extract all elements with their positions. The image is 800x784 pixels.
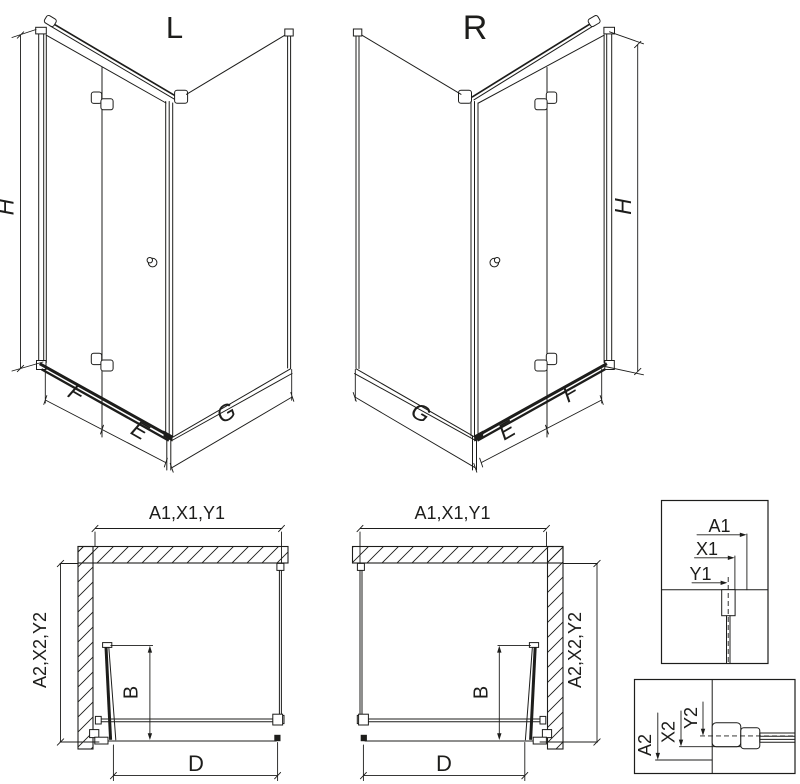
dim-label-g: G	[212, 397, 241, 428]
glass-and-rail-lines	[360, 571, 541, 742]
header-bar	[473, 21, 595, 97]
ref-label-y2: Y2	[681, 707, 701, 729]
wall-profile-top-cap	[36, 27, 47, 34]
header-bar-inner	[50, 26, 176, 100]
ref-label-a1: A1	[708, 516, 730, 536]
glass-and-rail-lines	[100, 571, 281, 742]
dim-label-f: F	[557, 377, 584, 408]
detail-view-top: A1 X1 Y1	[662, 501, 769, 664]
dim-label-f: F	[64, 378, 91, 409]
hinge-bottom	[535, 353, 557, 371]
ref-x1: X1	[695, 539, 735, 560]
ref-lines	[656, 747, 741, 760]
folded-door	[103, 643, 116, 740]
plan-view-left: A1,X1,Y1 A2,X2,Y2 B D	[30, 503, 288, 781]
wall-profile-left	[39, 31, 47, 366]
ref-label-a2: A2	[635, 734, 655, 756]
tray-corner-cap	[274, 735, 280, 741]
ref-lines	[735, 534, 747, 590]
dim-b-right: B	[471, 646, 531, 740]
door-pivot-bracket-2	[95, 737, 108, 744]
dim-g-right: G	[353, 370, 477, 473]
dim-d-left: D	[110, 743, 280, 781]
side-glass-top-cap	[357, 563, 364, 570]
dim-label-d: D	[436, 751, 452, 776]
ref-y1: Y1	[689, 564, 727, 585]
ref-y2: Y2	[681, 702, 705, 736]
dim-label-a2x2y2: A2,X2,Y2	[565, 612, 585, 688]
dim-label-h: H	[0, 198, 19, 215]
dim-label-b: B	[121, 686, 143, 699]
variant-label-l: L	[166, 10, 183, 45]
ref-label-y1: Y1	[689, 564, 711, 584]
iso-view-right: R H F E	[353, 9, 643, 472]
dim-h-left: H	[0, 30, 43, 372]
tray-corner-cap	[361, 735, 367, 741]
door-pivot-bracket-2	[533, 737, 546, 744]
hinge-top	[91, 92, 113, 110]
rail-corner-bracket	[359, 714, 369, 725]
rail-wall-bracket	[95, 716, 101, 724]
corner-bracket	[175, 90, 188, 103]
dim-label-b: B	[471, 686, 493, 699]
dim-label-h: H	[610, 198, 636, 215]
ref-label-x1: X1	[696, 539, 718, 559]
door-knob-icon	[490, 258, 500, 267]
hinge-bottom	[91, 353, 113, 371]
detail-view-bottom: A2 X2 Y2	[635, 680, 796, 774]
wall-left-hatched	[78, 547, 93, 750]
wall-right-hatched	[548, 547, 564, 750]
dim-h-right: H	[605, 32, 644, 375]
technical-drawing-page: L H	[0, 0, 800, 784]
dim-label-a1x1y1: A1,X1,Y1	[149, 503, 225, 523]
header-bar-end-cap	[587, 15, 601, 28]
side-panel-lines	[171, 33, 292, 441]
rail-profile-section-2	[741, 728, 760, 749]
iso-view-left: L H	[0, 10, 294, 472]
dim-d-right: D	[360, 743, 527, 781]
dim-label-g: G	[407, 397, 436, 428]
glass-section-lines	[760, 733, 795, 742]
side-panel-top-cap	[353, 29, 361, 36]
rail-corner-bracket	[273, 714, 283, 725]
dim-fe-left: F E	[44, 369, 168, 467]
ref-a1: A1	[697, 516, 747, 537]
door-knob-icon	[147, 258, 157, 267]
header-bar	[49, 21, 177, 97]
glass-section-lines	[727, 616, 731, 664]
dim-label-a1x1y1: A1,X1,Y1	[414, 503, 490, 523]
dim-label-a2x2y2: A2,X2,Y2	[30, 612, 50, 688]
dim-fe-right: F E	[480, 369, 604, 467]
dim-g-left: G	[170, 370, 294, 473]
ref-label-x2: X2	[659, 721, 679, 743]
folded-door	[525, 643, 538, 740]
bottom-rail-lower	[42, 369, 169, 440]
dim-label-d: D	[188, 751, 204, 776]
wall-top-hatched	[353, 547, 564, 564]
ref-a2: A2	[635, 713, 660, 760]
ref-x2: X2	[659, 711, 684, 746]
door-pivot-bracket	[542, 730, 551, 738]
wall-top-hatched	[78, 547, 288, 564]
rail-wall-bracket	[540, 716, 546, 724]
variant-label-r: R	[463, 9, 488, 47]
corner-bracket	[459, 90, 472, 103]
plan-view-right: A1,X1,Y1 A2,X2,Y2 B D	[353, 503, 601, 781]
drawing-canvas: L H	[0, 0, 800, 784]
side-panel-top-cap	[285, 29, 293, 36]
dim-b-left: B	[111, 646, 153, 740]
header-bar-inner	[474, 26, 594, 100]
rail-profile-section	[712, 723, 741, 747]
door-pivot-bracket	[90, 730, 99, 738]
side-glass-top-cap	[277, 563, 284, 570]
hinge-top	[535, 92, 557, 110]
